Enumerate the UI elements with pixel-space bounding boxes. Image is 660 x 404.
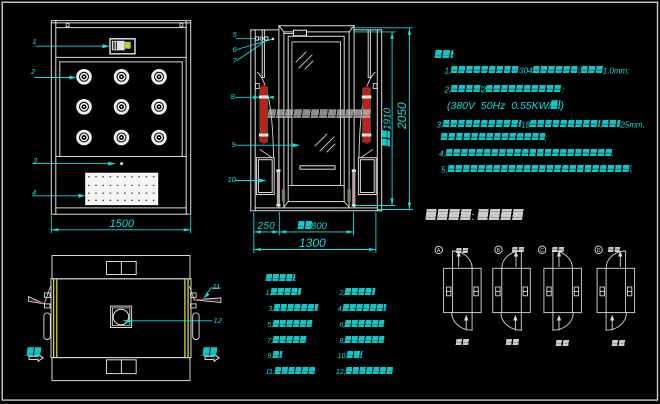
svg-text:C: C xyxy=(540,248,544,254)
svg-text:A: A xyxy=(437,248,441,254)
svg-text:D: D xyxy=(597,248,601,254)
svg-text:B: B xyxy=(497,248,501,254)
